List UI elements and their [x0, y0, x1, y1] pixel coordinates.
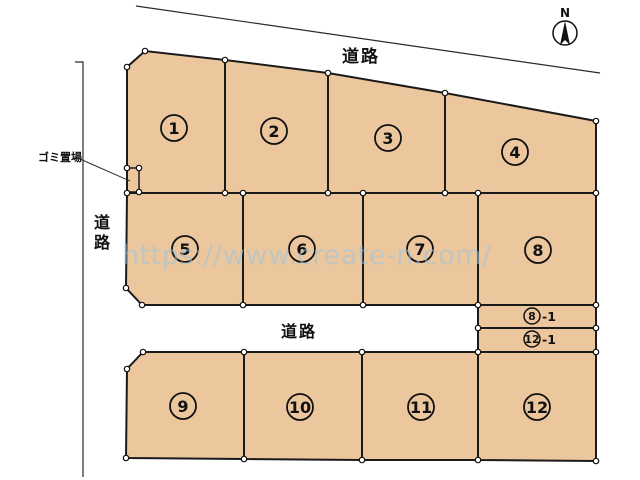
road-line-left [75, 62, 83, 477]
vertex-dot [359, 349, 364, 354]
vertex-dot [593, 325, 598, 330]
vertex-dot [325, 190, 330, 195]
garbage-label: ゴミ置場 [38, 150, 82, 164]
vertex-dot [593, 302, 598, 307]
vertex-dot [325, 70, 330, 75]
vertex-dot [475, 190, 480, 195]
strip-number-label: 12 [524, 333, 539, 346]
plot-number-label: 3 [382, 129, 393, 148]
vertex-dot [140, 349, 145, 354]
vertex-dot [123, 285, 128, 290]
plot-number-12: 12 [524, 394, 550, 420]
vertex-dot [442, 190, 447, 195]
vertex-dot [360, 302, 365, 307]
vertex-dot [136, 189, 141, 194]
vertex-dot [123, 455, 128, 460]
road-label-left: 道路 [92, 214, 108, 254]
vertex-dot [593, 190, 598, 195]
strip-number-label: 8 [528, 310, 536, 323]
vertex-dot [360, 190, 365, 195]
vertex-dot [475, 349, 480, 354]
compass-needle-icon [560, 21, 570, 45]
strip-suffix-label: -1 [542, 309, 556, 324]
vertex-dot [142, 48, 147, 53]
plot-number-label: 12 [526, 398, 548, 417]
plot-number-label: 8 [532, 241, 543, 260]
road-label-middle: 道路 [281, 322, 317, 341]
vertex-dot [124, 190, 129, 195]
vertex-dot [475, 325, 480, 330]
compass: N [553, 6, 577, 45]
vertex-dot [124, 165, 129, 170]
plot-number-label: 9 [177, 397, 188, 416]
compass-n-label: N [560, 6, 570, 20]
garbage-leader-line [80, 159, 130, 181]
vertex-dot [139, 302, 144, 307]
vertex-dot [124, 64, 129, 69]
vertex-dot [124, 366, 129, 371]
vertex-dot [475, 302, 480, 307]
vertex-dot [359, 457, 364, 462]
plot-number-label: 11 [410, 398, 432, 417]
plot-map-diagram: 1 2 3 4 5 6 7 8 [0, 0, 640, 480]
plot-number-label: 10 [289, 398, 311, 417]
vertex-dot [241, 456, 246, 461]
vertex-dot [475, 457, 480, 462]
vertex-dot [241, 349, 246, 354]
vertex-dot [593, 118, 598, 123]
vertex-dot [240, 302, 245, 307]
plot-number-label: 1 [168, 119, 179, 138]
vertex-dot [136, 165, 141, 170]
plot-number-10: 10 [287, 394, 313, 420]
vertex-dot [593, 349, 598, 354]
plot-number-label: 4 [509, 143, 520, 162]
vertex-dot [593, 458, 598, 463]
watermark: https://www.create-n.com/ [122, 240, 492, 271]
strip-suffix-label: -1 [542, 332, 556, 347]
road-label-top: 道路 [342, 46, 380, 67]
plot-number-11: 11 [408, 394, 434, 420]
vertex-dot [222, 57, 227, 62]
vertex-dot [222, 190, 227, 195]
strip-polygon-8-1 [478, 305, 596, 328]
vertex-dot [442, 90, 447, 95]
vertex-dot [240, 190, 245, 195]
plot-number-label: 2 [268, 122, 279, 141]
